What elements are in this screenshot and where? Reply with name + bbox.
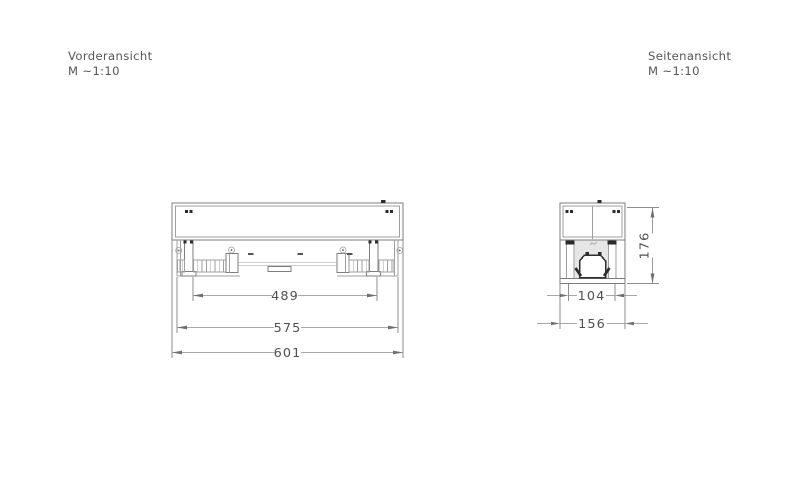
terminal-rail-left-outer <box>178 260 185 272</box>
rail-end-cap-left <box>226 254 238 273</box>
terminal-rail-right-outer <box>379 260 394 272</box>
side-bottom-band <box>560 279 625 284</box>
arrow-left-icon <box>177 326 187 330</box>
arrow-left-icon <box>172 351 182 355</box>
vent-mark-left <box>566 210 573 213</box>
rail-end-cap-right <box>337 254 349 273</box>
side-view-scale: M ~1:10 <box>648 64 700 78</box>
arrow-right-icon <box>551 322 560 326</box>
component-pin <box>598 252 601 255</box>
vent-mark-right <box>386 210 394 213</box>
screw-dot-icon <box>399 250 401 252</box>
arrow-right-icon <box>393 351 403 355</box>
vent-mark-left <box>185 210 193 213</box>
slider-block <box>268 267 291 272</box>
front-view-scale: M ~1:10 <box>68 64 120 78</box>
front-right-panel <box>395 240 399 276</box>
side-wall-left <box>560 240 575 284</box>
vent-mark-right <box>613 210 620 213</box>
arrow-left-icon <box>615 294 624 298</box>
component-pin <box>586 252 589 255</box>
front-cabinet-inner-outline <box>176 206 400 237</box>
front-cabinet-outline <box>172 203 403 240</box>
dimension-176: 176 <box>638 208 655 284</box>
screw-dot-icon <box>231 249 233 251</box>
dimension-value: 575 <box>274 321 302 336</box>
dimension-156: 156 <box>537 317 648 332</box>
top-edge-mark <box>598 200 602 203</box>
arrow-right-icon <box>388 326 398 330</box>
front-view-body <box>172 200 403 276</box>
side-wall-right <box>608 240 626 284</box>
inner-component <box>580 255 606 278</box>
arrow-left-icon <box>193 294 203 298</box>
dimension-value: 104 <box>578 289 606 304</box>
screw-dot-icon <box>342 249 344 251</box>
dimension-489: 489 <box>193 289 377 304</box>
dimension-575: 575 <box>177 321 398 336</box>
arrow-right-icon <box>367 294 377 298</box>
dimension-value: 489 <box>271 289 299 304</box>
screw-dot-icon <box>178 250 180 252</box>
arrow-left-icon <box>625 322 634 326</box>
drawing-sheet: Vorderansicht M ~1:10 Seitenansicht M ~1… <box>0 0 800 500</box>
front-view-dimensions: 489 575 601 <box>172 240 403 361</box>
dimension-value: 156 <box>578 317 606 332</box>
front-view-title: Vorderansicht <box>68 49 153 63</box>
terminal-rail-left <box>194 260 227 272</box>
top-edge-mark <box>381 200 386 203</box>
arrow-right-icon <box>560 294 569 298</box>
dimension-value: 601 <box>274 346 302 361</box>
side-view-body <box>560 200 625 284</box>
dimension-601: 601 <box>172 346 403 361</box>
terminal-rail-right <box>349 260 369 272</box>
connecting-rail <box>238 262 337 265</box>
dimension-104: 104 <box>547 289 637 304</box>
drawing-canvas: Vorderansicht M ~1:10 Seitenansicht M ~1… <box>0 0 800 500</box>
dimension-value: 176 <box>638 232 653 260</box>
side-view-title: Seitenansicht <box>648 49 731 63</box>
arrow-down-icon <box>651 274 655 284</box>
front-screws <box>176 247 403 254</box>
arrow-up-icon <box>651 208 655 218</box>
